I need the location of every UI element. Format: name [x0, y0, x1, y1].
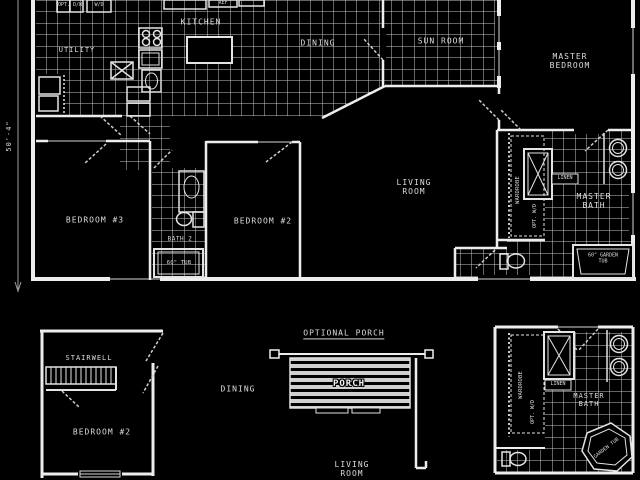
room-label-kitchen: KITCHEN [181, 17, 222, 26]
floorplan-linework [0, 0, 640, 480]
fixture-label-wardrobe-lower: WARDROBE [518, 371, 524, 399]
room-label-utility: UTILITY [59, 46, 96, 54]
room-label-living-room: LIVING ROOM [397, 178, 432, 196]
room-label-dining-lower: DINING [221, 384, 256, 393]
room-label-dining: DINING [301, 38, 336, 47]
living-room-lower-line1: LIVING [335, 460, 370, 469]
living-room-line1: LIVING [397, 178, 432, 187]
master-bedroom-line2: BEDROOM [550, 61, 591, 70]
room-label-master-bedroom: MASTER BEDROOM [550, 52, 591, 70]
room-label-porch: PORCH [333, 379, 365, 389]
master-bath-line2: BATH [577, 201, 612, 210]
fixture-label-garden-tub: 60" GARDEN TUB [588, 253, 618, 265]
room-label-master-bath-lower: MASTER BATH [573, 392, 604, 408]
fixture-label-wardrobe: WARDROBE [515, 176, 521, 204]
fixture-label-tub: 60" TUB [167, 260, 192, 266]
living-room-lower-line2: ROOM [335, 469, 370, 478]
room-label-stairwell: STAIRWELL [66, 354, 113, 362]
room-label-bath2: BATH 2 [168, 237, 193, 244]
fixture-label-opt-dw: OPT. D/W [58, 3, 82, 9]
fixture-label-ref: REF [218, 1, 227, 7]
fixture-label-opt-wd-lower: OPT. W/D [531, 400, 537, 424]
master-bath-line1: MASTER [577, 192, 612, 201]
fixture-label-linen-lower: LINEN [550, 382, 565, 388]
fixture-label-linen: LINEN [557, 176, 572, 182]
master-bedroom-line1: MASTER [550, 52, 591, 61]
room-label-master-bath: MASTER BATH [577, 192, 612, 210]
master-bath-lower-line1: MASTER [573, 392, 604, 400]
room-label-living-room-lower: LIVING ROOM [335, 460, 370, 478]
room-label-sun-room: SUN ROOM [418, 36, 465, 45]
floor-plan-page: 50'-4" UTILITY KITCHEN DINING SUN ROOM M… [0, 0, 640, 480]
living-room-line2: ROOM [397, 187, 432, 196]
garden-tub-line2: TUB [588, 259, 618, 265]
room-label-bedroom2: BEDROOM #2 [234, 216, 292, 225]
fixture-label-opt-wd: OPT. W/D [533, 204, 539, 228]
fixture-label-wd: W/D [94, 3, 103, 9]
master-bath-lower-line2: BATH [573, 400, 604, 408]
room-label-bedroom2-lower: BEDROOM #2 [73, 427, 131, 436]
heading-optional-porch: OPTIONAL PORCH [303, 328, 384, 339]
dimension-label-left: 50'-4" [5, 120, 13, 151]
room-label-bedroom3: BEDROOM #3 [66, 215, 124, 224]
